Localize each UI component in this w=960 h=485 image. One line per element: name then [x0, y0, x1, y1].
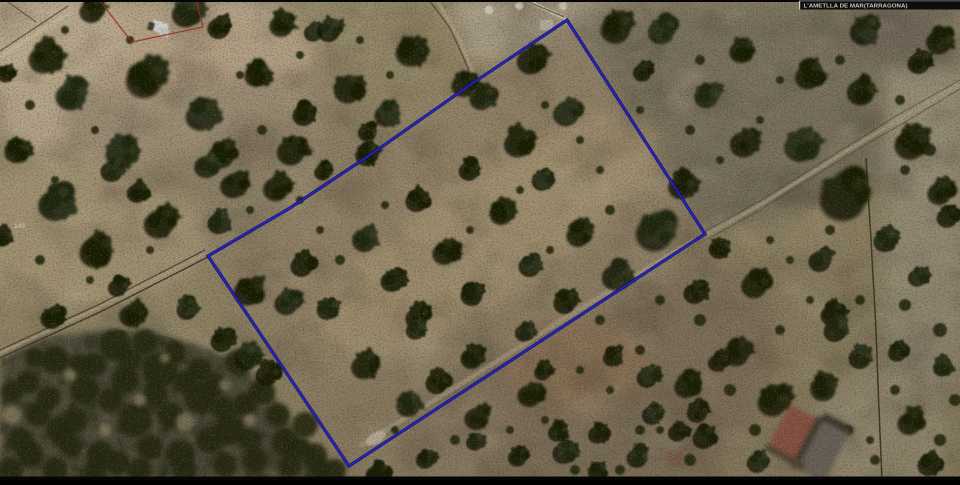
svg-text:L'AMETLLA DE MAR(TARRAGONA): L'AMETLLA DE MAR(TARRAGONA): [804, 3, 908, 9]
svg-text:143: 143: [14, 223, 25, 230]
